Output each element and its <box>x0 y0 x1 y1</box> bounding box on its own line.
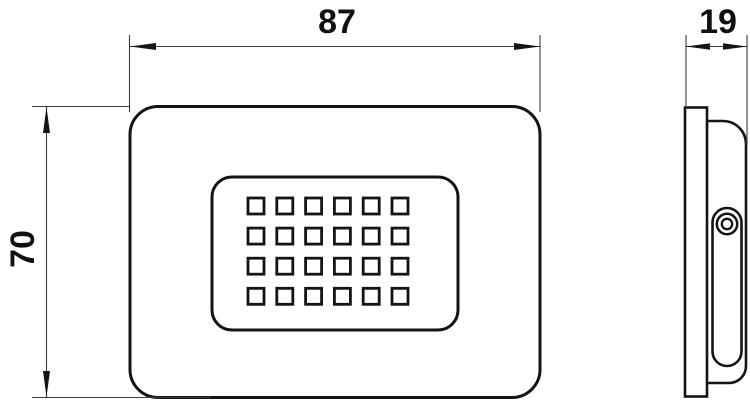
led-square <box>277 288 293 304</box>
technical-drawing: 87 70 19 <box>0 0 750 402</box>
led-square <box>334 228 350 244</box>
mounting-slot <box>713 208 742 366</box>
led-square <box>306 288 322 304</box>
led-square <box>277 228 293 244</box>
led-square <box>248 288 264 304</box>
width-arrow-left <box>130 43 156 50</box>
height-arrow-top <box>43 107 50 133</box>
width-dimension-label: 87 <box>318 3 356 41</box>
led-square <box>306 258 322 274</box>
led-square <box>248 228 264 244</box>
depth-arrow-left <box>686 43 710 50</box>
led-square <box>306 198 322 214</box>
led-square <box>334 288 350 304</box>
led-square <box>363 288 379 304</box>
led-square <box>363 198 379 214</box>
led-square <box>277 198 293 214</box>
led-square <box>248 258 264 274</box>
height-arrow-bottom <box>43 371 50 397</box>
led-square <box>392 288 408 304</box>
led-square <box>392 228 408 244</box>
led-square <box>334 198 350 214</box>
side-view <box>685 108 746 397</box>
led-square <box>363 228 379 244</box>
width-arrow-right <box>514 43 540 50</box>
depth-arrow-right <box>723 43 747 50</box>
led-square <box>363 258 379 274</box>
height-dimension-label: 70 <box>4 230 42 268</box>
led-square <box>306 228 322 244</box>
led-square <box>277 258 293 274</box>
depth-dimension-label: 19 <box>699 3 737 41</box>
led-square <box>392 258 408 274</box>
drawing-canvas: 87 70 19 <box>0 0 750 402</box>
front-view <box>130 107 540 398</box>
side-front-plate <box>685 108 707 397</box>
width-dimension: 87 <box>130 3 541 112</box>
led-square <box>334 258 350 274</box>
led-square <box>248 198 264 214</box>
led-square <box>392 198 408 214</box>
